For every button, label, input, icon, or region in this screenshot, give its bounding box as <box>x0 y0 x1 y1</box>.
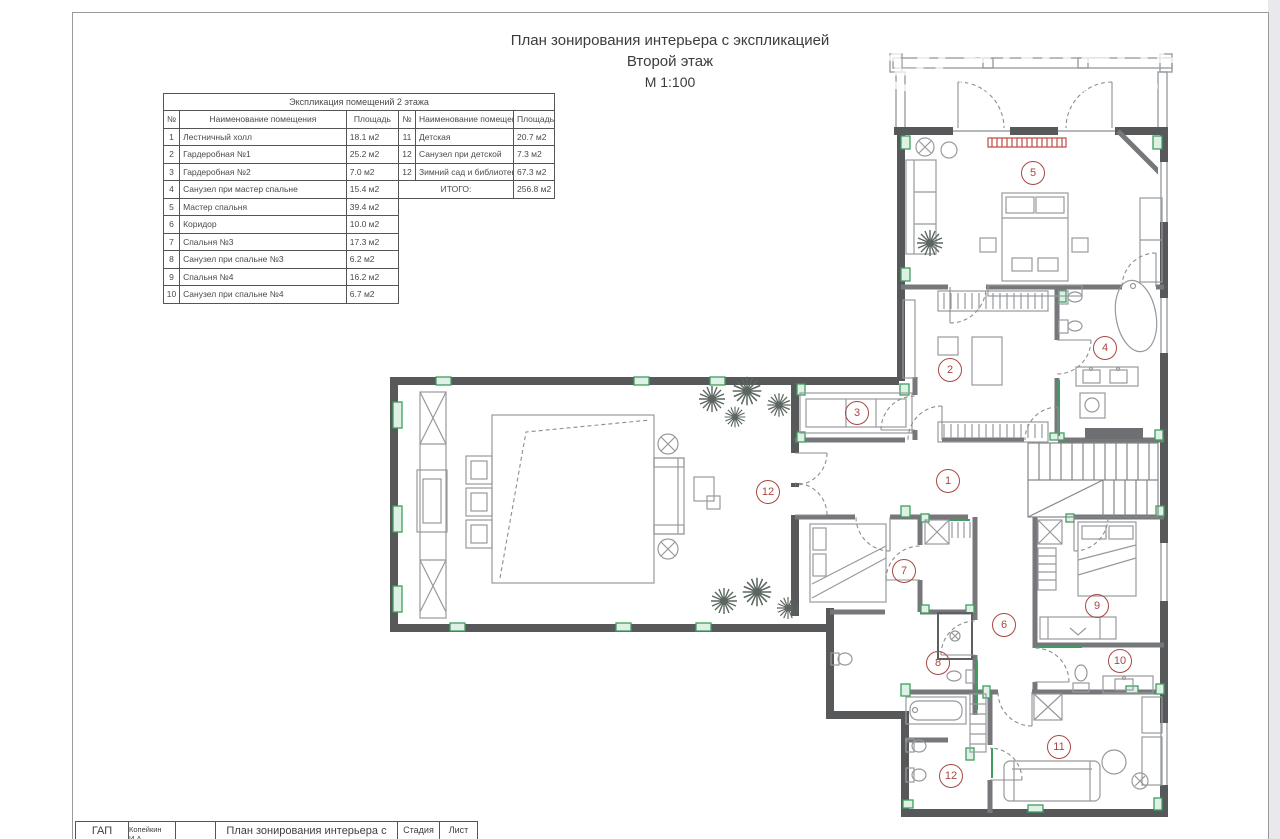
children-room-furniture <box>1004 694 1162 801</box>
master-bedroom-furniture <box>906 138 1162 296</box>
bath4-fixtures <box>1073 665 1153 693</box>
floor-plan <box>0 0 1280 839</box>
title-block: ГАП Копейкин И.А. План зонирования интер… <box>75 821 478 839</box>
balcony <box>890 54 1172 129</box>
bath3-fixtures <box>831 613 974 683</box>
wardrobe2-furniture <box>800 393 912 433</box>
title-block-stage: Стадия <box>398 822 440 839</box>
master-bath-fixtures <box>1059 277 1162 439</box>
winter-garden-furniture <box>417 377 799 619</box>
title-block-name: Копейкин И.А. <box>129 822 176 839</box>
bedroom4-furniture <box>1038 520 1136 639</box>
title-block-sheet: Лист <box>440 822 478 839</box>
staircase <box>1028 443 1158 517</box>
title-block-empty <box>176 822 216 839</box>
title-block-role: ГАП <box>76 822 129 839</box>
sheet-page: План зонирования интерьера с экспликацие… <box>0 0 1280 839</box>
wardrobe1-furniture <box>903 291 1048 442</box>
openings <box>790 125 1170 785</box>
title-block-sheet-name: План зонирования интерьера с <box>216 822 398 839</box>
